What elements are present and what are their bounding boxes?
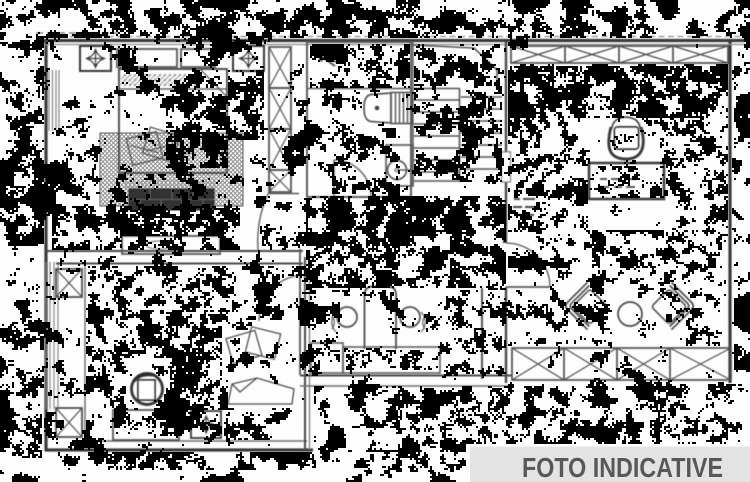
svg-text:FOTO INDICATIVE: FOTO INDICATIVE bbox=[522, 452, 723, 482]
